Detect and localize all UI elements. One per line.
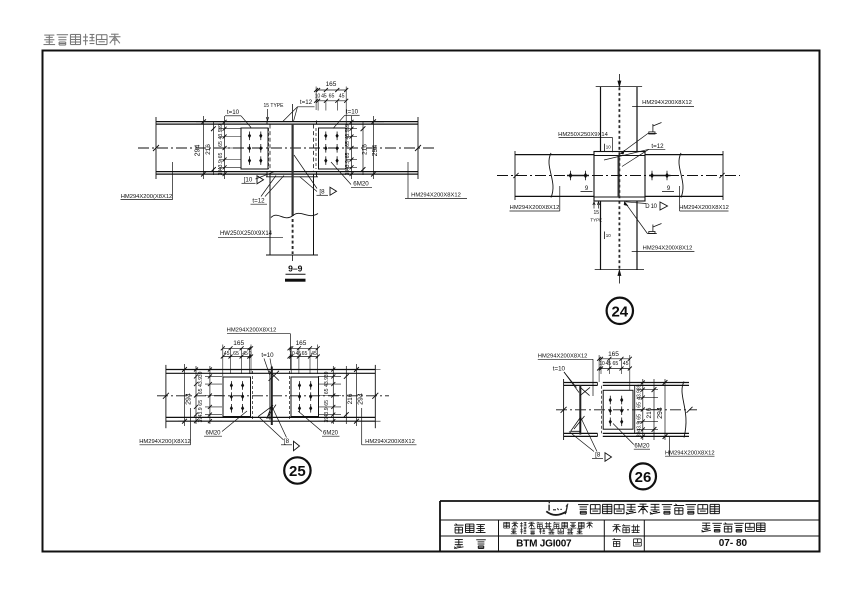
- svg-text:HM294X200(X8X12: HM294X200(X8X12: [121, 194, 173, 200]
- svg-text:HM294X200X8X12: HM294X200X8X12: [665, 450, 715, 456]
- svg-text:65: 65: [345, 153, 351, 159]
- svg-text:294: 294: [357, 393, 364, 405]
- svg-text:39: 39: [198, 417, 204, 423]
- svg-text:294: 294: [657, 407, 664, 419]
- svg-text:t=10: t=10: [346, 109, 359, 116]
- svg-text:6M20: 6M20: [323, 431, 339, 437]
- svg-text:165: 165: [233, 340, 244, 347]
- svg-text:65: 65: [636, 414, 642, 420]
- svg-text:65: 65: [324, 400, 330, 406]
- svg-text:65: 65: [198, 388, 204, 394]
- svg-text:D 10: D 10: [645, 204, 657, 210]
- svg-text:294: 294: [195, 145, 202, 157]
- svg-text:216: 216: [347, 393, 354, 404]
- svg-text:43.9: 43.9: [345, 129, 351, 139]
- svg-text:43.9: 43.9: [324, 377, 330, 387]
- svg-text:HM250X250X9X14: HM250X250X9X14: [558, 132, 608, 138]
- svg-text:65: 65: [324, 388, 330, 394]
- svg-text:43.9: 43.9: [636, 422, 642, 432]
- svg-text:HM294X200X8X12: HM294X200X8X12: [510, 205, 560, 211]
- svg-text:39: 39: [218, 170, 224, 176]
- svg-text:[10: [10: [244, 177, 253, 184]
- svg-text:165: 165: [296, 340, 307, 347]
- svg-text:43.9: 43.9: [198, 407, 204, 417]
- svg-text:294: 294: [372, 145, 379, 157]
- svg-text:43.9: 43.9: [198, 377, 204, 387]
- svg-text:216: 216: [361, 144, 368, 155]
- svg-text:HM294X200X8X12: HM294X200X8X12: [538, 353, 588, 359]
- svg-text:65: 65: [302, 351, 308, 357]
- svg-text:[8: [8: [319, 189, 325, 196]
- svg-text:65: 65: [218, 153, 224, 159]
- svg-text:t=10: t=10: [227, 109, 240, 116]
- svg-text:65: 65: [218, 141, 224, 147]
- svg-text:65: 65: [613, 361, 619, 367]
- svg-text:43.9: 43.9: [218, 129, 224, 139]
- svg-text:43.9: 43.9: [636, 390, 642, 400]
- svg-text:HM294X200X8X12: HM294X200X8X12: [365, 439, 415, 445]
- svg-text:39: 39: [218, 124, 224, 130]
- svg-text:t=10: t=10: [553, 366, 566, 373]
- svg-text:24: 24: [611, 303, 628, 320]
- svg-text:HM294X200(X8X12: HM294X200(X8X12: [139, 439, 191, 445]
- svg-text:294: 294: [186, 393, 193, 405]
- svg-text:t=12: t=12: [651, 143, 664, 150]
- svg-text:65: 65: [345, 141, 351, 147]
- svg-text:45: 45: [311, 351, 317, 357]
- svg-text:HM294X200X8X12: HM294X200X8X12: [643, 246, 693, 252]
- svg-text:HM294X200X8X12: HM294X200X8X12: [679, 205, 729, 211]
- svg-text:165: 165: [326, 81, 337, 88]
- svg-text:39: 39: [324, 417, 330, 423]
- svg-text:[8: [8: [595, 452, 601, 459]
- svg-text:15: 15: [594, 210, 600, 216]
- svg-text:t=12: t=12: [300, 99, 313, 106]
- svg-text:10 45: 10 45: [315, 93, 327, 99]
- svg-text:HM294X200X8X12: HM294X200X8X12: [227, 328, 277, 334]
- svg-text:6M20: 6M20: [205, 431, 221, 437]
- svg-text:9–9: 9–9: [288, 264, 303, 274]
- svg-text:BTM JGI007: BTM JGI007: [516, 539, 572, 550]
- svg-text:t=12: t=12: [252, 198, 265, 205]
- svg-text:165: 165: [608, 351, 619, 358]
- svg-text:6M20: 6M20: [634, 443, 650, 449]
- svg-text:65: 65: [198, 400, 204, 406]
- svg-text:45: 45: [224, 351, 230, 357]
- svg-text:6M20: 6M20: [353, 181, 369, 188]
- svg-text:26: 26: [635, 469, 652, 486]
- svg-text:39: 39: [198, 371, 204, 377]
- svg-text:65: 65: [233, 351, 239, 357]
- svg-text:HW250X250X9X14: HW250X250X9X14: [220, 231, 273, 237]
- svg-text:43.9: 43.9: [345, 160, 351, 170]
- svg-text:216: 216: [205, 144, 212, 155]
- svg-text:07- 80: 07- 80: [719, 538, 748, 549]
- svg-text:45: 45: [339, 93, 345, 99]
- svg-text:39: 39: [345, 170, 351, 176]
- svg-text:43.9: 43.9: [218, 160, 224, 170]
- svg-text:TYPE: TYPE: [590, 218, 602, 223]
- svg-text:45: 45: [623, 361, 629, 367]
- svg-text:10: 10: [606, 145, 612, 150]
- svg-text:15 TYPE: 15 TYPE: [264, 103, 285, 109]
- svg-text:HM294X200X8X12: HM294X200X8X12: [411, 193, 461, 199]
- svg-text:25: 25: [289, 463, 306, 480]
- svg-text:10: 10: [606, 233, 612, 238]
- svg-text:43.9: 43.9: [324, 407, 330, 417]
- svg-text:[8: [8: [284, 438, 290, 445]
- svg-text:65: 65: [636, 402, 642, 408]
- svg-text:t=10: t=10: [261, 352, 274, 359]
- svg-text:HM294X200X8X12: HM294X200X8X12: [642, 100, 692, 106]
- svg-text:216: 216: [646, 407, 653, 418]
- svg-text:65: 65: [329, 93, 335, 99]
